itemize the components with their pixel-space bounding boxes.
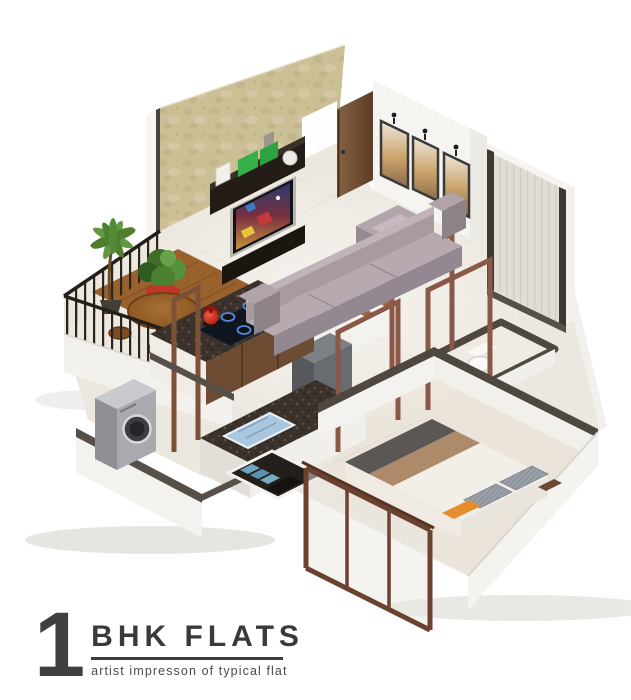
pictures-wall-shade bbox=[470, 128, 487, 247]
page-subtitle: artist impresson of typical flat bbox=[91, 664, 304, 678]
washer-side bbox=[95, 398, 117, 470]
picture-light-2 bbox=[423, 129, 428, 134]
door-knob bbox=[341, 150, 345, 154]
floor-plan-svg bbox=[0, 0, 631, 700]
picture-light-1 bbox=[392, 113, 397, 118]
title-text: BHK FLATS artist impresson of typical fl… bbox=[91, 608, 304, 682]
panel-outer-edge bbox=[566, 186, 575, 324]
unit-count: 1 bbox=[34, 608, 82, 682]
page-title: BHK FLATS bbox=[91, 620, 304, 654]
entrance-door bbox=[337, 91, 373, 198]
door-slab bbox=[337, 91, 373, 198]
floor-plan-render: 1 BHK FLATS artist impresson of typical … bbox=[0, 0, 631, 700]
shelf-white-sphere bbox=[283, 151, 297, 165]
picture-light-3 bbox=[454, 145, 459, 150]
title-block: 1 BHK FLATS artist impresson of typical … bbox=[34, 608, 304, 682]
shadow-left bbox=[25, 526, 275, 554]
washer-door-glass bbox=[130, 422, 145, 437]
title-underline bbox=[91, 657, 283, 660]
red-kettle bbox=[203, 307, 219, 327]
panel-right-trim bbox=[559, 187, 566, 327]
